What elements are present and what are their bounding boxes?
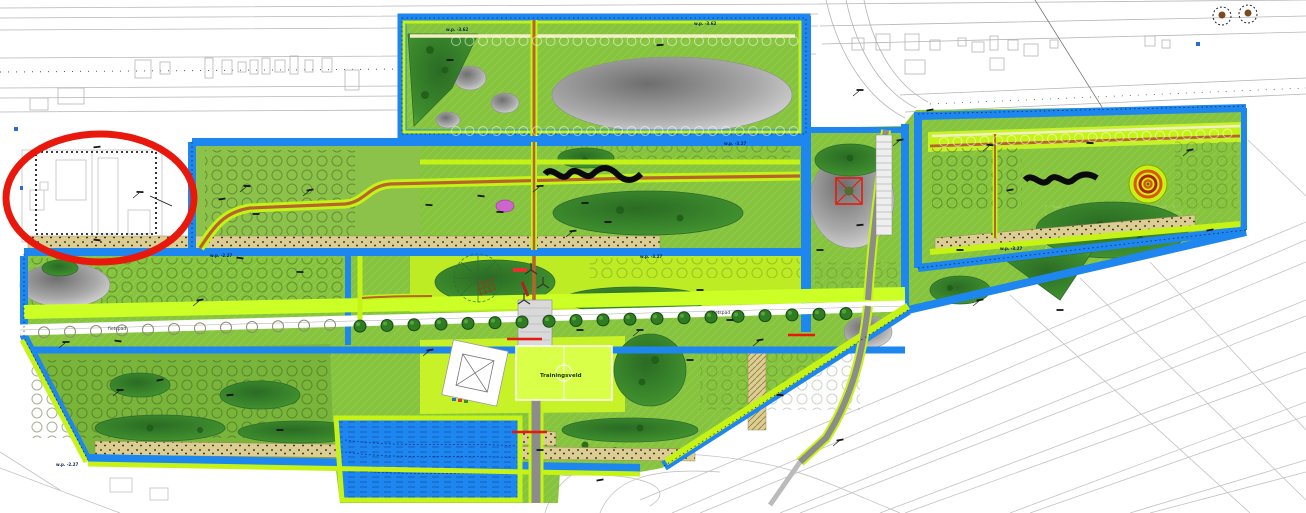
site-blue-mark [20,186,23,190]
water-level-label: w.p. -3.62 [446,27,468,32]
annotation-mark [1057,309,1064,311]
avenue-tree-highlight [680,314,684,318]
annotation-mark [581,202,588,204]
parking-strip [876,135,892,235]
annotation-mark [577,329,584,331]
swimming-lake [336,418,520,500]
avenue-tree [678,312,690,324]
avenue-tree [570,315,582,327]
annotation-mark [637,329,644,331]
avenue-tree [354,320,366,332]
preserved-tree-icons [1213,5,1257,25]
avenue-tree [732,310,744,322]
avenue-tree-highlight [599,316,603,320]
site-plan-map: Trainingsveld w.p. -3.62 w.p. -3.62 w.p.… [0,0,1306,513]
annotation-mark [596,479,603,482]
cadastral-blue-mark [14,127,18,131]
annotation-mark [62,341,69,343]
fietspad-label: fietspad [108,326,126,332]
avenue-tree [489,317,501,329]
annotation-mark [136,191,143,193]
avenue-tree [435,318,447,330]
water-level-label: w.p. -3.27 [1000,246,1022,251]
avenue-tree [408,319,420,331]
avenue-tree [840,308,852,320]
water-level-label: w.p. -3.62 [694,21,716,26]
avenue-tree-highlight [734,312,738,316]
flower-bed [496,200,514,212]
avenue-tree [759,310,771,322]
building-site-plan [22,150,162,242]
avenue-tree-highlight [437,320,441,324]
site-demarcation-dashed [36,152,156,234]
annotation-mark [93,146,100,149]
avenue-tree [543,315,555,327]
water-level-label: w.p. -3.27 [640,254,662,259]
annotation-mark [537,449,544,451]
avenue-tree-highlight [518,318,522,322]
avenue-tree-highlight [383,321,387,325]
avenue-tree-highlight [761,312,765,316]
avenue-tree-highlight [788,311,792,315]
event-square [442,340,508,406]
avenue-tree-highlight [626,315,630,319]
annotation-mark [605,221,612,223]
site-label-leader [150,196,172,206]
fietspad-label: fietspad [712,310,730,316]
avenue-tree-highlight [464,319,468,323]
avenue-tree-highlight [842,310,846,314]
annotation-mark [277,429,284,431]
annotation-leader [853,91,859,96]
park [20,16,1246,505]
avenue-tree-highlight [356,322,360,326]
water-level-label: w.p. -2.27 [210,253,232,258]
avenue-tree [624,313,636,325]
annotation-mark [296,271,303,273]
avenue-tree-highlight [410,321,414,325]
annotation-mark [117,389,124,391]
cadastral-buildings-north [30,56,359,110]
avenue-tree [381,319,393,331]
avenue-tree-highlight [653,314,657,318]
annotation-mark [727,319,734,321]
water-level-label: w.p. -3.27 [724,141,746,146]
hatched-path [748,350,766,430]
trainingsveld-label: Trainingsveld [540,373,582,379]
avenue-tree-highlight [491,319,495,323]
annotation-mark [687,359,694,361]
cadastral-blue-mark [1196,42,1200,46]
avenue-tree [516,316,528,328]
annotation-mark [957,249,964,251]
annotation-mark [253,213,260,215]
annotation-mark [697,289,704,291]
avenue-tree [786,309,798,321]
avenue-tree-highlight [572,317,576,321]
annotation-mark [447,59,454,61]
annotation-mark [1086,142,1093,144]
avenue-tree-highlight [707,313,711,317]
avenue-tree [813,308,825,320]
avenue-tree [462,317,474,329]
avenue-tree [597,314,609,326]
annotation-mark [496,211,503,213]
annotation-mark [243,185,250,187]
annotation-leader [133,193,139,198]
avenue-tree-highlight [815,310,819,314]
annotation-mark [857,89,864,91]
spiral-mound [1129,165,1167,203]
site-plan-viewport: Trainingsveld w.p. -3.62 w.p. -3.62 w.p.… [0,0,1306,513]
water-level-label: w.p. -2.27 [56,462,78,467]
annotation-mark [817,249,824,251]
avenue-tree-highlight [545,317,549,321]
avenue-tree [651,312,663,324]
cadastral-buildings-northeast [852,34,1170,74]
